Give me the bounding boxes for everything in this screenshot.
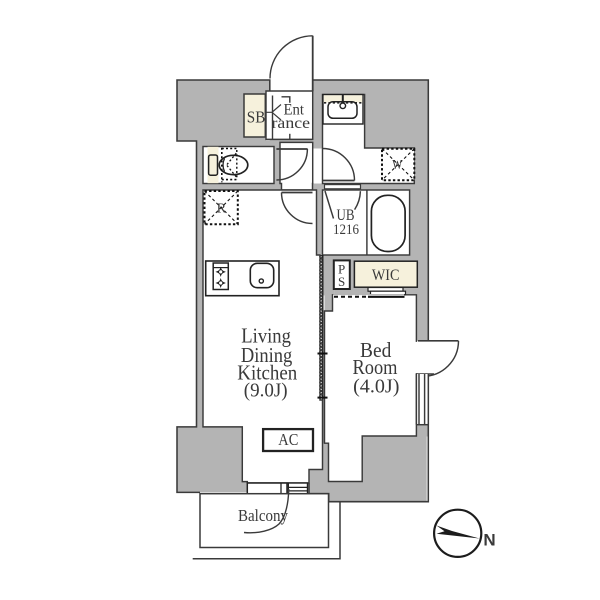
svg-text:S: S: [338, 274, 345, 289]
svg-text:1216: 1216: [333, 222, 359, 238]
svg-text:WIC: WIC: [372, 267, 400, 284]
svg-text:W: W: [392, 157, 402, 172]
svg-text:R: R: [217, 202, 227, 217]
svg-text:N: N: [483, 531, 495, 550]
svg-text:SB: SB: [247, 108, 265, 127]
svg-text:AC: AC: [278, 430, 298, 449]
svg-text:rance: rance: [272, 115, 311, 132]
svg-text:(4.0J): (4.0J): [353, 376, 399, 398]
svg-text:(9.0J): (9.0J): [244, 380, 288, 402]
